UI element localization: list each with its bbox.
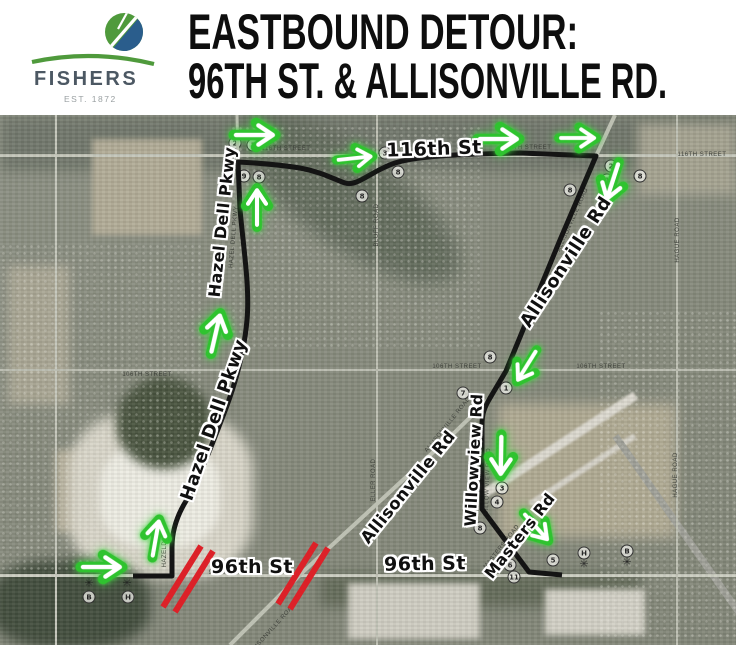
title-line-2: 96TH ST. & ALLISONVILLE RD. xyxy=(188,59,667,103)
logo-established: EST. 1872 xyxy=(64,94,117,104)
fishers-logo: FISHERS EST. 1872 xyxy=(30,8,180,112)
detour-arrow-right xyxy=(74,549,132,584)
detour-arrow-right xyxy=(553,122,605,154)
logo-wordmark: FISHERS xyxy=(34,68,138,91)
detour-arrow-up xyxy=(241,179,274,233)
label-116th-st: 116th St xyxy=(386,136,482,161)
detour-arrow-right xyxy=(329,140,382,176)
detour-map: 116TH STREET 116TH STREET 116TH STREET 1… xyxy=(0,115,736,645)
label-96th-left: 96th St xyxy=(211,556,293,578)
header: FISHERS EST. 1872 EASTBOUND DETOUR: 96TH… xyxy=(0,0,736,115)
page-title: EASTBOUND DETOUR: 96TH ST. & ALLISONVILL… xyxy=(188,0,736,115)
label-96th-right: 96th St xyxy=(384,552,466,575)
title-line-1: EASTBOUND DETOUR: xyxy=(188,10,578,54)
detour-arrow-down xyxy=(483,428,519,486)
logo-swoosh xyxy=(32,56,154,64)
